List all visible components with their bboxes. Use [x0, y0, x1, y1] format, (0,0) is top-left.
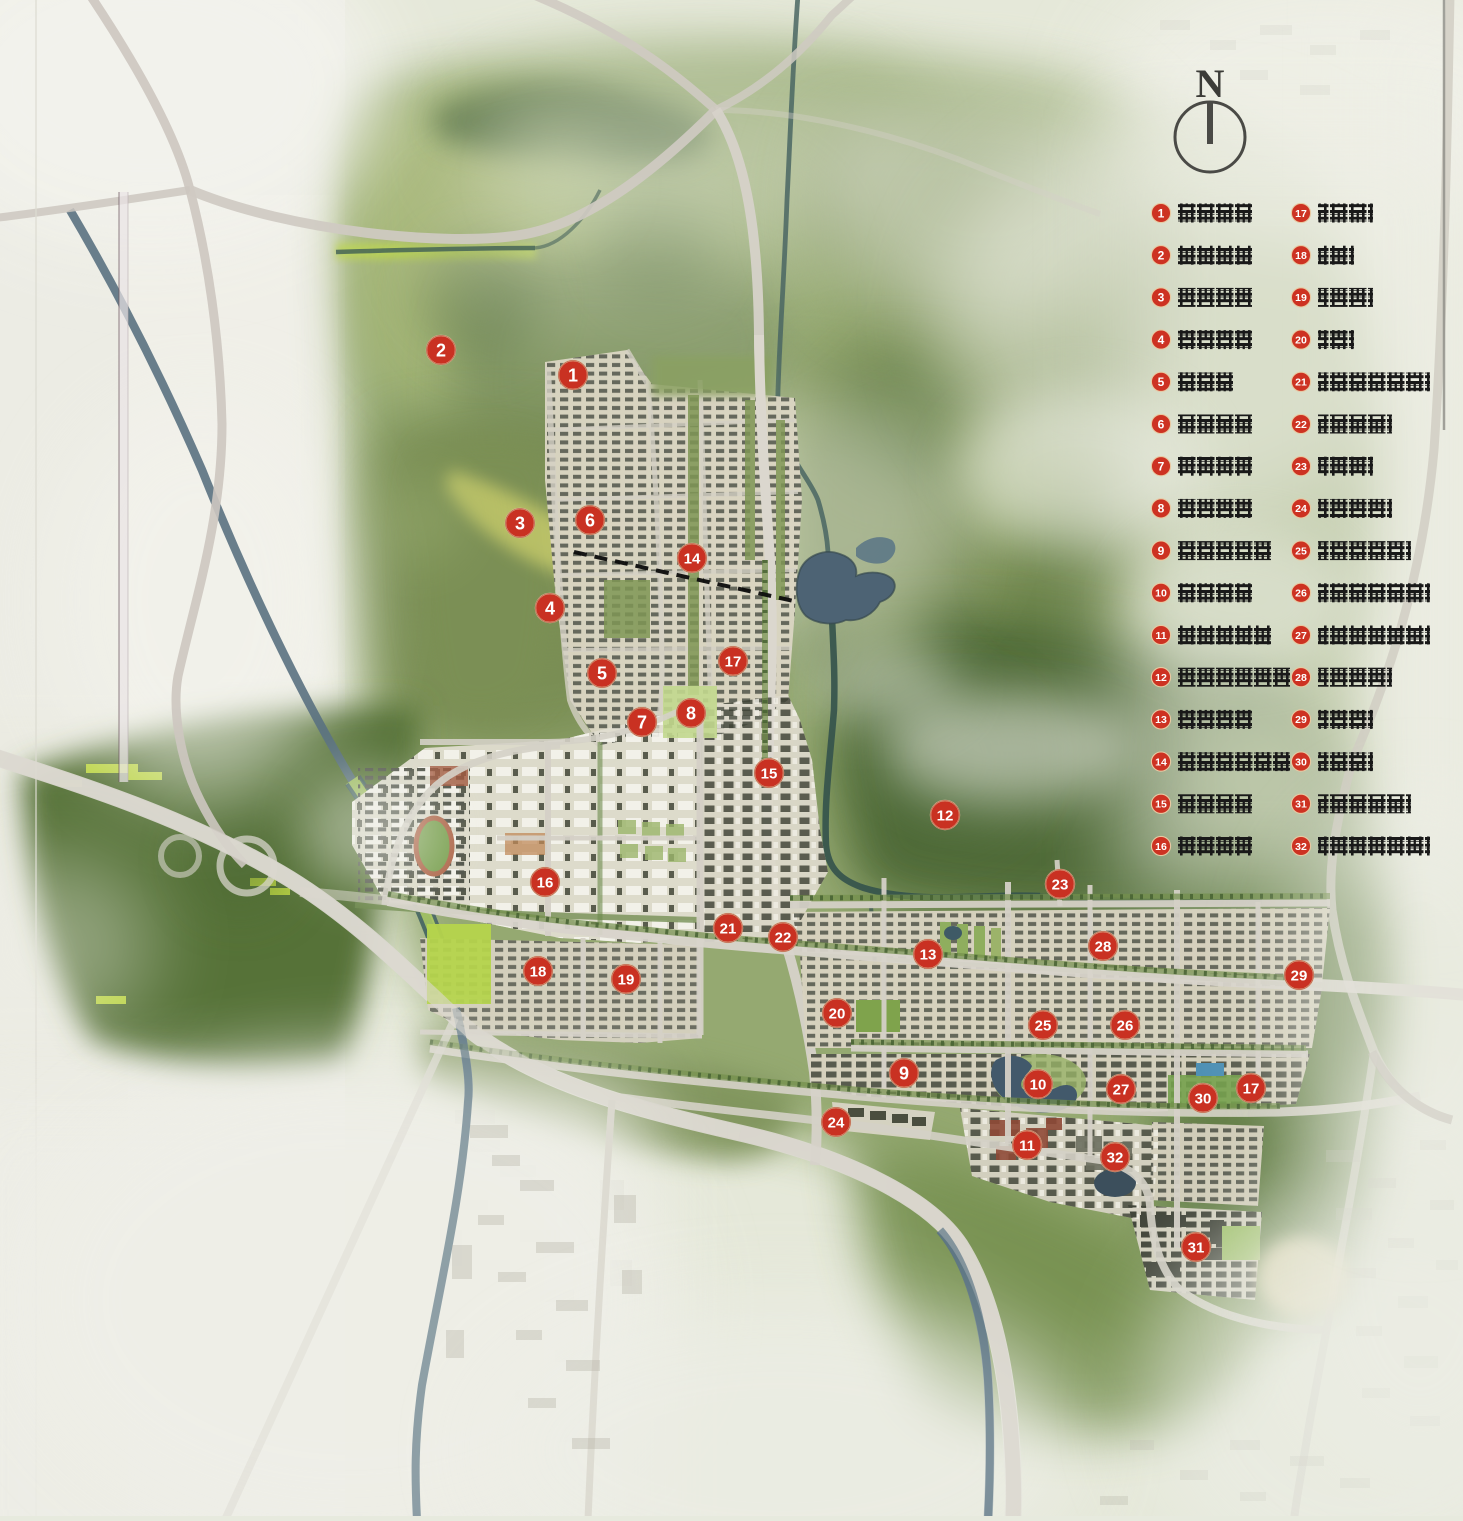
- svg-text:19: 19: [1295, 292, 1307, 304]
- svg-text:果树采摘: 果树采摘: [1177, 244, 1250, 265]
- svg-text:32: 32: [1107, 1149, 1124, 1166]
- svg-text:15: 15: [1155, 799, 1167, 811]
- svg-text:体育场: 体育场: [1318, 751, 1372, 772]
- svg-text:31: 31: [1295, 799, 1307, 811]
- svg-text:17: 17: [1295, 208, 1307, 220]
- svg-text:25: 25: [1035, 1017, 1052, 1034]
- svg-text:9: 9: [899, 1063, 909, 1083]
- svg-text:第六产业: 第六产业: [1178, 455, 1250, 476]
- svg-text:18: 18: [530, 963, 547, 980]
- svg-text:1: 1: [1158, 206, 1165, 220]
- svg-text:30: 30: [1195, 1090, 1212, 1107]
- svg-text:4: 4: [545, 598, 555, 618]
- svg-text:16: 16: [1155, 841, 1167, 853]
- svg-text:环湖公园: 环湖公园: [1178, 583, 1250, 603]
- svg-text:25: 25: [1295, 545, 1307, 557]
- svg-text:21: 21: [1295, 377, 1307, 389]
- svg-text:19: 19: [618, 971, 635, 988]
- svg-text:6: 6: [1158, 417, 1165, 431]
- svg-text:北京大学: 北京大学: [1178, 835, 1250, 856]
- svg-text:23: 23: [1295, 461, 1307, 473]
- svg-text:21: 21: [720, 920, 737, 937]
- svg-text:文化展览馆: 文化展览馆: [1178, 624, 1268, 645]
- svg-text:15: 15: [761, 765, 778, 782]
- svg-text:27: 27: [1295, 630, 1307, 642]
- svg-text:2: 2: [1158, 249, 1165, 263]
- svg-text:26: 26: [1295, 588, 1307, 600]
- svg-text:29: 29: [1295, 714, 1307, 726]
- svg-text:17: 17: [725, 653, 742, 670]
- svg-text:27: 27: [1113, 1081, 1130, 1098]
- svg-text:28: 28: [1095, 938, 1112, 955]
- svg-text:加油站: 加油站: [1317, 708, 1372, 729]
- svg-text:24: 24: [1295, 503, 1307, 515]
- svg-text:综合医院: 综合医院: [1178, 793, 1250, 814]
- svg-text:农业采摘: 农业采摘: [1177, 329, 1250, 350]
- svg-text:20: 20: [1295, 334, 1307, 346]
- svg-text:中学: 中学: [1318, 244, 1354, 265]
- svg-text:23: 23: [1052, 876, 1069, 893]
- svg-text:28: 28: [1295, 672, 1307, 684]
- svg-text:学术研究中心: 学术研究中心: [1318, 624, 1426, 645]
- svg-text:13: 13: [920, 946, 937, 963]
- svg-text:17: 17: [1243, 1080, 1260, 1097]
- svg-text:22: 22: [1295, 419, 1307, 431]
- svg-text:8: 8: [686, 703, 696, 723]
- svg-text:10: 10: [1030, 1076, 1047, 1093]
- svg-text:游客接待中心: 游客接待中心: [1318, 371, 1426, 392]
- svg-text:少年宫: 少年宫: [1317, 286, 1372, 307]
- svg-text:18: 18: [1295, 250, 1307, 262]
- svg-text:大明文化影城: 大明文化影城: [1318, 835, 1426, 856]
- svg-text:镇级行政中心: 镇级行政中心: [1178, 751, 1286, 772]
- svg-text:特色民俗: 特色民俗: [1178, 708, 1251, 729]
- svg-text:11: 11: [1019, 1137, 1035, 1154]
- svg-text:9: 9: [1158, 544, 1165, 558]
- svg-text:7: 7: [1158, 460, 1165, 474]
- svg-text:2: 2: [436, 340, 446, 360]
- svg-text:14: 14: [1155, 756, 1167, 768]
- svg-text:12: 12: [1155, 672, 1167, 684]
- svg-text:N: N: [1196, 61, 1225, 106]
- svg-text:31: 31: [1188, 1239, 1205, 1256]
- svg-text:5: 5: [1158, 375, 1165, 389]
- svg-text:1: 1: [568, 365, 578, 385]
- svg-text:化学研究所: 化学研究所: [1318, 793, 1408, 814]
- svg-text:5: 5: [597, 663, 607, 683]
- svg-text:8: 8: [1158, 502, 1165, 516]
- svg-text:12: 12: [937, 807, 954, 824]
- svg-text:3: 3: [515, 513, 525, 533]
- svg-text:10: 10: [1155, 588, 1167, 600]
- svg-text:文化美食街: 文化美食街: [1178, 540, 1268, 561]
- svg-text:32: 32: [1295, 841, 1307, 853]
- svg-text:30: 30: [1295, 756, 1307, 768]
- svg-text:康养中心: 康养中心: [1178, 202, 1250, 223]
- svg-text:社区公园: 社区公园: [1318, 666, 1390, 687]
- svg-text:20: 20: [829, 1005, 846, 1022]
- svg-text:陵园管理中心: 陵园管理中心: [1318, 582, 1426, 603]
- svg-text:消防站: 消防站: [1318, 455, 1372, 476]
- svg-text:13: 13: [1155, 714, 1167, 726]
- svg-text:景观农业: 景观农业: [1178, 286, 1250, 307]
- svg-text:6: 6: [585, 510, 595, 530]
- svg-text:骑行登山体验: 骑行登山体验: [1178, 666, 1287, 687]
- svg-text:交通枢组: 交通枢组: [1318, 413, 1390, 434]
- svg-text:特色集市: 特色集市: [1178, 413, 1250, 434]
- svg-text:14: 14: [684, 550, 701, 567]
- svg-text:29: 29: [1291, 967, 1308, 984]
- svg-text:幼儿园: 幼儿园: [1318, 202, 1372, 223]
- svg-text:农家乐: 农家乐: [1177, 371, 1232, 392]
- svg-text:供热设施: 供热设施: [1317, 497, 1390, 518]
- svg-text:11: 11: [1155, 630, 1166, 642]
- svg-text:16: 16: [537, 874, 554, 891]
- svg-text:22: 22: [775, 929, 792, 946]
- svg-text:3: 3: [1158, 291, 1165, 305]
- svg-text:7: 7: [637, 712, 647, 732]
- svg-text:24: 24: [828, 1114, 845, 1131]
- svg-text:文化广场: 文化广场: [1178, 497, 1250, 518]
- svg-text:沉浸体验区: 沉浸体验区: [1318, 540, 1408, 561]
- svg-text:4: 4: [1158, 333, 1165, 347]
- svg-text:小学: 小学: [1318, 329, 1354, 350]
- svg-text:26: 26: [1117, 1017, 1134, 1034]
